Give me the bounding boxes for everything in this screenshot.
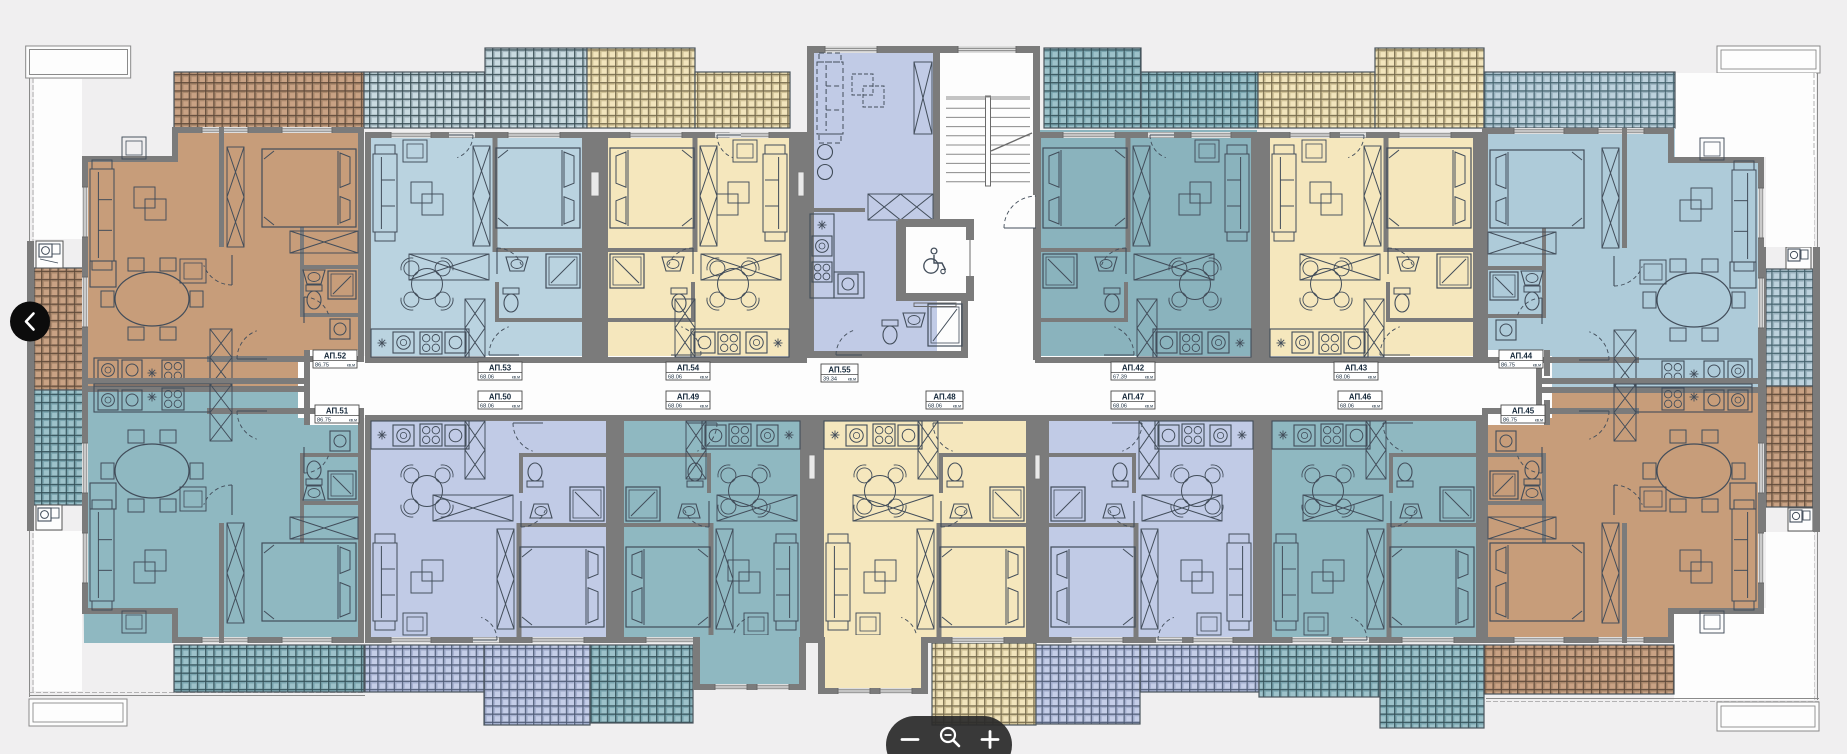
svg-text:кв.м: кв.м — [1145, 374, 1153, 379]
svg-text:АП.46: АП.46 — [1349, 393, 1372, 402]
svg-text:кв.м: кв.м — [953, 403, 961, 408]
svg-text:кв.м: кв.м — [848, 376, 856, 381]
svg-text:АП.50: АП.50 — [489, 393, 512, 402]
svg-text:АП.42: АП.42 — [1122, 364, 1145, 373]
svg-text:кв.м: кв.м — [1535, 417, 1543, 422]
svg-text:кв.м: кв.м — [512, 403, 520, 408]
svg-text:АП.53: АП.53 — [489, 364, 512, 373]
svg-text:86.75: 86.75 — [315, 363, 329, 369]
svg-text:68.06: 68.06 — [668, 375, 682, 381]
svg-text:АП.52: АП.52 — [324, 352, 347, 361]
svg-text:кв.м: кв.м — [512, 374, 520, 379]
svg-text:кв.м: кв.м — [347, 362, 355, 367]
svg-text:39.34: 39.34 — [823, 377, 837, 383]
svg-text:67.39: 67.39 — [1113, 375, 1127, 381]
svg-text:кв.м: кв.м — [1372, 403, 1380, 408]
svg-text:АП.45: АП.45 — [1512, 407, 1535, 416]
svg-text:68.06: 68.06 — [1113, 404, 1127, 410]
svg-text:кв.м: кв.м — [349, 417, 357, 422]
svg-text:68.06: 68.06 — [928, 404, 942, 410]
svg-text:АП.47: АП.47 — [1122, 393, 1145, 402]
svg-text:кв.м: кв.м — [1368, 374, 1376, 379]
svg-text:кв.м: кв.м — [1145, 403, 1153, 408]
svg-text:АП.51: АП.51 — [326, 407, 349, 416]
svg-text:68.06: 68.06 — [480, 375, 494, 381]
svg-text:68.06: 68.06 — [480, 404, 494, 410]
svg-text:68.06: 68.06 — [1340, 404, 1354, 410]
svg-text:АП.55: АП.55 — [828, 366, 851, 375]
svg-text:АП.49: АП.49 — [677, 393, 700, 402]
svg-text:86.75: 86.75 — [1501, 363, 1515, 369]
svg-text:АП.54: АП.54 — [677, 364, 700, 373]
svg-text:кв.м: кв.м — [700, 374, 708, 379]
svg-text:АП.43: АП.43 — [1345, 364, 1368, 373]
svg-text:86.75: 86.75 — [317, 418, 331, 424]
svg-text:АП.48: АП.48 — [933, 393, 956, 402]
svg-text:АП.44: АП.44 — [1510, 352, 1533, 361]
svg-text:кв.м: кв.м — [700, 403, 708, 408]
svg-text:кв.м: кв.м — [1533, 362, 1541, 367]
svg-text:86.75: 86.75 — [1503, 418, 1517, 424]
svg-text:68.06: 68.06 — [668, 404, 682, 410]
svg-text:68.06: 68.06 — [1336, 375, 1350, 381]
